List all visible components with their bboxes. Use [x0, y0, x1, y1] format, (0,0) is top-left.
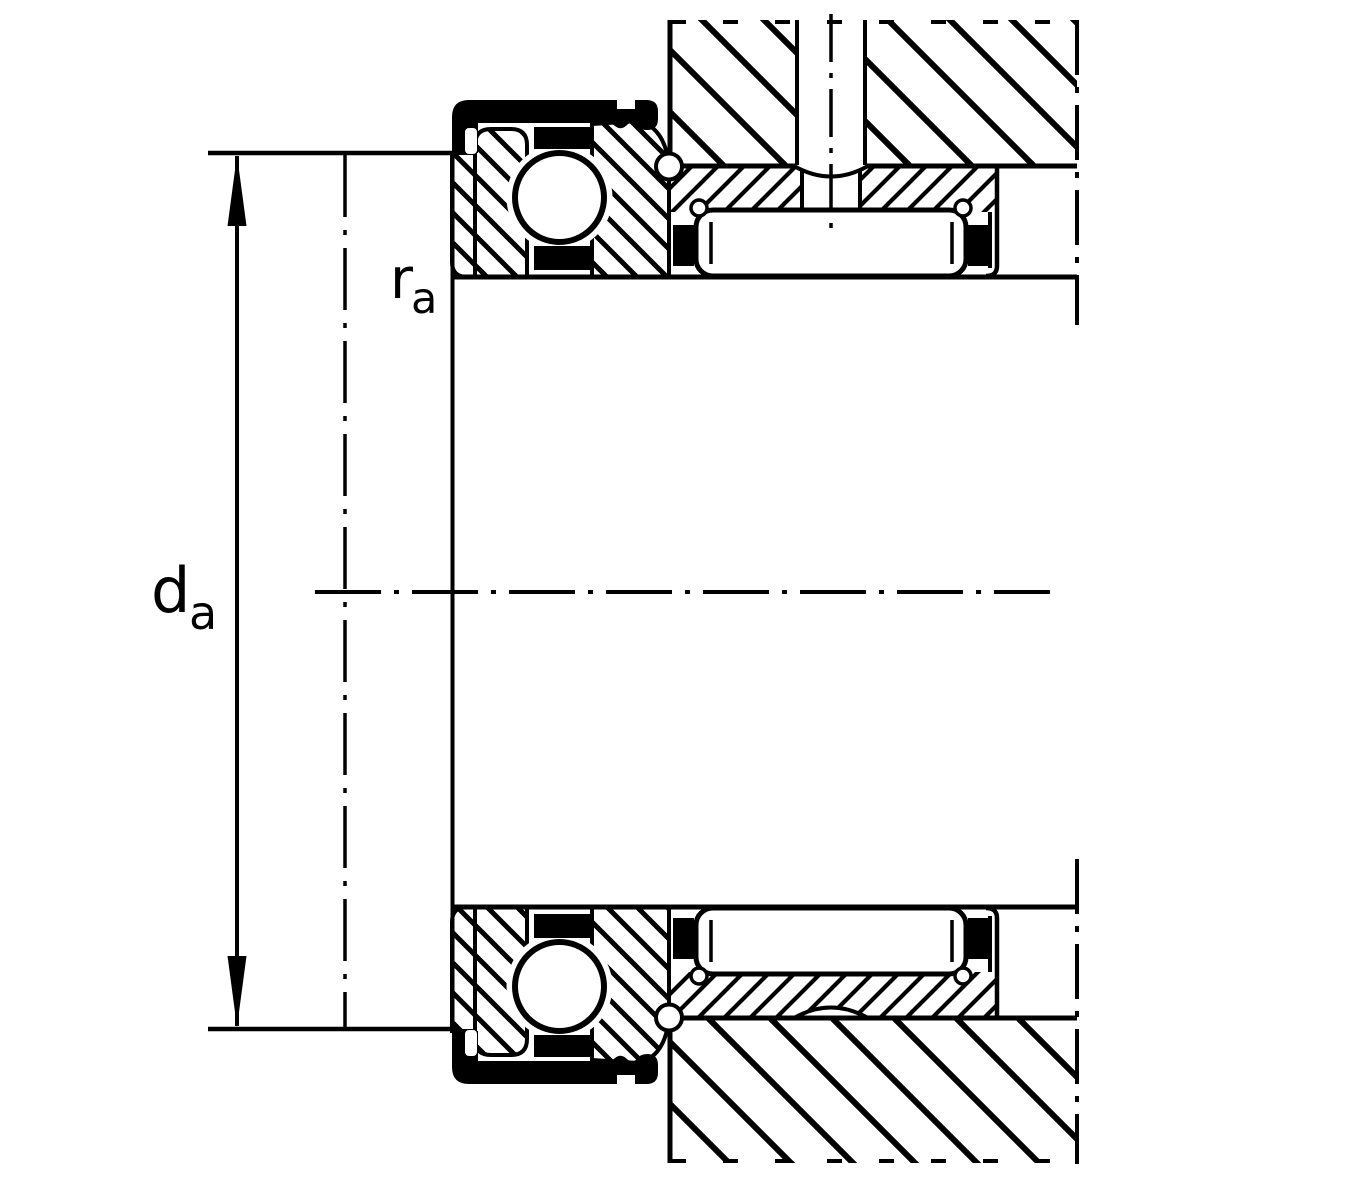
junction-recess-top	[656, 154, 682, 180]
drawing-canvas: d a r a	[0, 0, 1350, 1200]
housing-bottom-hatch	[670, 1018, 1077, 1163]
inner-ring-left-bottom	[452, 907, 475, 1031]
ball-cage-upper-bottom	[534, 914, 590, 938]
needle-cage-right-bottom	[968, 918, 990, 959]
label-da-subscript: a	[189, 586, 217, 640]
cage-pin-left-top	[691, 200, 707, 216]
inner-ring-left-top	[452, 153, 475, 277]
cage-pin-right-top	[955, 200, 971, 216]
needle-cage-left-top	[673, 225, 694, 266]
ball-cage-lower-top	[534, 246, 590, 270]
housing-top-hatch	[670, 20, 1077, 166]
seal-groove-top	[465, 128, 477, 154]
ball-bottom	[515, 942, 604, 1031]
ball-top	[515, 153, 604, 242]
needle-roller-bottom-body	[696, 908, 966, 974]
cage-pin-left-bottom	[691, 968, 707, 984]
housing-top	[670, 16, 1077, 167]
ball-cage-upper-top	[534, 127, 590, 149]
junction-recess-bottom	[656, 1005, 682, 1031]
label-ra-subscript: a	[411, 274, 437, 324]
needle-roller-bottom	[673, 908, 990, 984]
seal-groove-bottom	[465, 1030, 477, 1056]
cage-pin-right-bottom	[955, 968, 971, 984]
ball-cage-lower-bottom	[534, 1035, 590, 1057]
bearing-cross-section-diagram: d a r a	[0, 0, 1350, 1200]
needle-cage-left-bottom	[673, 918, 694, 959]
label-da-symbol: d	[151, 554, 190, 627]
needle-cage-right-top	[968, 225, 990, 266]
housing-bottom	[670, 1017, 1077, 1163]
needle-roller-top-body	[696, 210, 966, 276]
